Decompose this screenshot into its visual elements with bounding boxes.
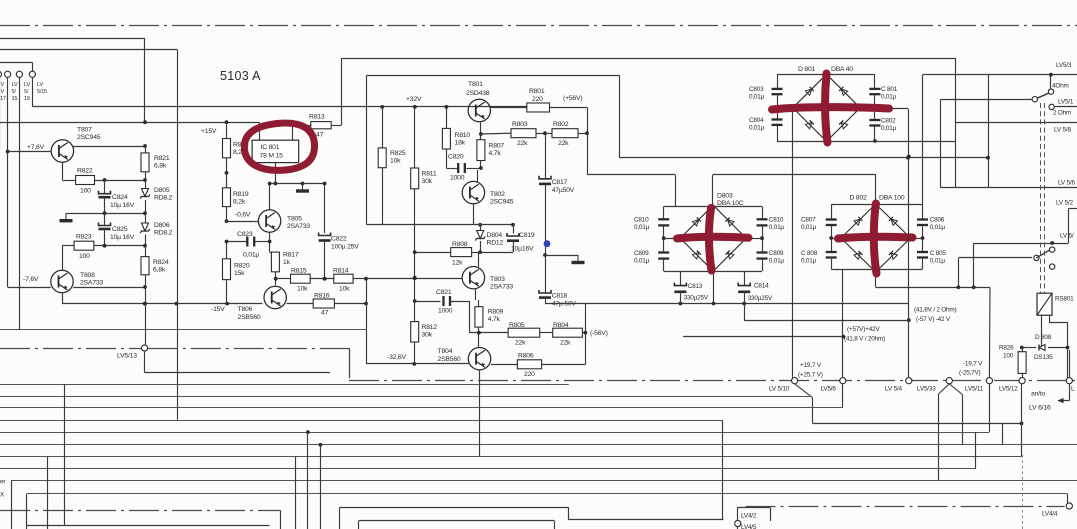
svg-text:V: V — [1, 89, 5, 95]
svg-text:2SA733: 2SA733 — [80, 280, 103, 287]
svg-text:17: 17 — [0, 96, 6, 102]
svg-text:(-57 V) -42 V: (-57 V) -42 V — [916, 316, 951, 323]
svg-text:22k: 22k — [515, 340, 526, 347]
svg-text:T808: T808 — [80, 272, 95, 279]
svg-text:R815: R815 — [291, 268, 307, 275]
svg-text:10k: 10k — [390, 158, 401, 165]
svg-text:LV5/33: LV5/33 — [917, 386, 936, 393]
svg-text:R810: R810 — [455, 132, 471, 139]
svg-text:30k: 30k — [422, 332, 433, 339]
svg-text:C809: C809 — [634, 250, 649, 257]
svg-text:5/: 5/ — [12, 89, 17, 95]
svg-text:8,2k: 8,2k — [233, 199, 246, 206]
svg-text:100µ 25V: 100µ 25V — [331, 244, 359, 251]
svg-text:8,2: 8,2 — [233, 149, 242, 156]
svg-text:6,8k: 6,8k — [154, 163, 167, 170]
svg-text:LV4/4: LV4/4 — [1042, 511, 1058, 518]
svg-text:R805: R805 — [509, 322, 525, 329]
svg-text:18k: 18k — [455, 140, 466, 147]
svg-text:V: V — [1, 82, 5, 88]
svg-text:100: 100 — [79, 253, 90, 260]
svg-text:R821: R821 — [154, 155, 170, 162]
svg-text:LV 5/2: LV 5/2 — [1056, 200, 1073, 207]
svg-text:LV: LV — [37, 82, 43, 88]
svg-text:R822: R822 — [77, 168, 93, 175]
svg-text:4Ohm: 4Ohm — [1052, 83, 1069, 90]
svg-text:5/15: 5/15 — [37, 89, 47, 95]
svg-text:C803: C803 — [749, 86, 764, 93]
svg-text:15: 15 — [12, 96, 18, 102]
svg-text:12k: 12k — [452, 260, 463, 267]
svg-text:RD8,2: RD8,2 — [154, 195, 173, 202]
svg-text:100: 100 — [80, 188, 91, 195]
svg-text:30k: 30k — [422, 178, 433, 185]
svg-text:0,01µ: 0,01µ — [801, 224, 817, 231]
svg-text:(41,8 V / 20hm): (41,8 V / 20hm) — [844, 336, 885, 343]
svg-text:1000: 1000 — [450, 175, 465, 182]
svg-text:R808: R808 — [452, 241, 468, 248]
svg-text:R809: R809 — [488, 309, 504, 316]
svg-text:D 802: D 802 — [850, 195, 868, 202]
svg-text:LV5/1: LV5/1 — [1058, 99, 1074, 106]
svg-text:LV 5/8: LV 5/8 — [1054, 127, 1071, 134]
svg-text:C 808: C 808 — [801, 250, 818, 257]
svg-text:(-25,7V): (-25,7V) — [959, 370, 981, 377]
svg-text:-0,6V: -0,6V — [235, 212, 251, 219]
svg-text:R814: R814 — [333, 268, 349, 275]
svg-text:2SB560: 2SB560 — [438, 356, 461, 363]
svg-text:78 M 15: 78 M 15 — [260, 153, 284, 160]
svg-text:T803: T803 — [490, 276, 505, 283]
svg-text:D 808: D 808 — [1035, 334, 1052, 341]
svg-text:LV5/13: LV5/13 — [117, 353, 137, 360]
svg-text:0,01µ: 0,01µ — [634, 258, 650, 265]
svg-text:R820: R820 — [234, 263, 250, 270]
svg-text:47: 47 — [321, 310, 329, 317]
svg-text:T804: T804 — [438, 348, 453, 355]
svg-text:R803: R803 — [512, 121, 528, 128]
svg-text:22k: 22k — [560, 340, 571, 347]
svg-text:330µ25V: 330µ25V — [748, 295, 773, 302]
svg-text:0,01µ: 0,01µ — [881, 94, 897, 101]
svg-text:R806: R806 — [518, 353, 534, 360]
svg-text:C824: C824 — [112, 194, 128, 201]
svg-text:220: 220 — [532, 96, 543, 103]
svg-text:LV 5/4: LV 5/4 — [885, 386, 902, 393]
svg-text:15k: 15k — [234, 270, 245, 277]
svg-text:100: 100 — [1003, 353, 1014, 360]
svg-text:+32V: +32V — [406, 96, 422, 103]
svg-text:LV5/3: LV5/3 — [1056, 62, 1072, 69]
svg-text:0,01µ: 0,01µ — [881, 125, 897, 132]
svg-text:R824: R824 — [153, 259, 169, 266]
svg-text:R825: R825 — [390, 150, 406, 157]
svg-text:R807: R807 — [489, 143, 505, 150]
svg-text:4,7k: 4,7k — [489, 150, 502, 157]
svg-text:22k: 22k — [517, 140, 528, 147]
svg-text:C821: C821 — [436, 289, 452, 296]
svg-text:C825: C825 — [112, 226, 128, 233]
svg-text:(41,8V / 2 Ohm): (41,8V / 2 Ohm) — [914, 307, 957, 314]
svg-text:RS801: RS801 — [1055, 296, 1074, 303]
svg-text:10µ16V: 10µ16V — [511, 246, 534, 253]
svg-text:0,01µ: 0,01µ — [769, 258, 785, 265]
svg-text:6,8k: 6,8k — [153, 267, 166, 274]
svg-text:1000: 1000 — [438, 308, 453, 315]
svg-text:2SA733: 2SA733 — [490, 284, 513, 291]
svg-text:22k: 22k — [558, 140, 569, 147]
svg-text:0,01µ: 0,01µ — [801, 258, 817, 265]
svg-text:C823: C823 — [237, 231, 253, 238]
svg-text:R802: R802 — [553, 121, 569, 128]
svg-text:4,7k: 4,7k — [488, 316, 501, 323]
svg-text:DBA 100: DBA 100 — [879, 195, 905, 202]
svg-text:LV: LV — [24, 82, 30, 88]
svg-text:LV 5/: LV 5/ — [1060, 233, 1074, 240]
svg-text:RD8,2: RD8,2 — [154, 230, 173, 237]
svg-text:R812: R812 — [422, 324, 438, 331]
svg-text:(+25,7 V): (+25,7 V) — [798, 372, 823, 379]
svg-text:(+56V): (+56V) — [563, 95, 582, 102]
svg-text:10k: 10k — [297, 286, 308, 293]
svg-text:5103 A: 5103 A — [220, 69, 261, 83]
svg-text:2SB560: 2SB560 — [238, 314, 261, 321]
svg-text:R819: R819 — [233, 191, 249, 198]
svg-text:T806: T806 — [238, 306, 253, 313]
svg-text:0,01µ: 0,01µ — [243, 252, 259, 259]
svg-text:+7,6V: +7,6V — [27, 144, 45, 151]
svg-text:0,01µ: 0,01µ — [769, 224, 785, 231]
svg-text:C813: C813 — [688, 283, 703, 290]
svg-text:0,01µ: 0,01µ — [930, 258, 946, 265]
svg-text:LV 6/16: LV 6/16 — [1029, 405, 1051, 412]
svg-text:10µ 16V: 10µ 16V — [110, 202, 135, 209]
svg-text:LV: LV — [12, 82, 18, 88]
svg-text:C814: C814 — [754, 283, 769, 290]
svg-text:C822: C822 — [331, 236, 347, 243]
svg-text:R801: R801 — [529, 88, 545, 95]
svg-text:(-56V): (-56V) — [590, 330, 608, 337]
svg-text:2 Ohm: 2 Ohm — [1053, 110, 1071, 117]
svg-text:R816: R816 — [314, 293, 330, 300]
svg-text:an/to: an/to — [1031, 391, 1046, 398]
svg-text:2SC945: 2SC945 — [77, 134, 101, 141]
svg-text:R817: R817 — [283, 252, 299, 259]
svg-text:0,01µ: 0,01µ — [930, 224, 946, 231]
svg-text:LV5/11: LV5/11 — [965, 386, 984, 393]
svg-text:DBA 40: DBA 40 — [831, 66, 853, 73]
svg-text:LV4/2: LV4/2 — [741, 513, 757, 520]
svg-text:330µ25V: 330µ25V — [684, 295, 709, 302]
svg-text:-15V: -15V — [211, 306, 225, 313]
svg-text:1k: 1k — [283, 259, 291, 266]
svg-text:R823: R823 — [76, 234, 92, 241]
svg-text:2SA733: 2SA733 — [287, 223, 310, 230]
svg-text:R804: R804 — [553, 322, 569, 329]
svg-text:R826: R826 — [999, 345, 1014, 352]
svg-text:220: 220 — [524, 371, 535, 378]
svg-text:D806: D806 — [154, 222, 170, 229]
svg-text:0,01µ: 0,01µ — [749, 94, 765, 101]
svg-text:19: 19 — [24, 96, 30, 102]
svg-text:DS135: DS135 — [1034, 354, 1053, 361]
svg-text:LV5/6: LV5/6 — [821, 386, 837, 393]
svg-text:C 801: C 801 — [881, 86, 898, 93]
svg-text:(+57V)+42V: (+57V)+42V — [847, 326, 880, 333]
svg-text:D805: D805 — [154, 187, 170, 194]
svg-text:R811: R811 — [422, 171, 437, 178]
svg-text:47: 47 — [316, 132, 324, 139]
svg-text:LV 5/6: LV 5/6 — [1058, 180, 1075, 187]
svg-text:-19,7 V: -19,7 V — [963, 361, 983, 368]
svg-text:T807: T807 — [77, 127, 92, 134]
svg-text:2SD438: 2SD438 — [466, 90, 490, 97]
svg-text:2SC945: 2SC945 — [490, 199, 514, 206]
svg-text:+15V: +15V — [201, 128, 217, 135]
svg-text:C802: C802 — [881, 118, 896, 125]
svg-text:C820: C820 — [448, 154, 464, 161]
svg-text:C817: C817 — [552, 179, 568, 186]
svg-text:RD12: RD12 — [487, 240, 504, 247]
svg-text:LV5/12: LV5/12 — [999, 386, 1018, 393]
svg-text:C806: C806 — [930, 217, 945, 224]
svg-text:0,01µ: 0,01µ — [634, 224, 650, 231]
svg-text:-7,6V: -7,6V — [23, 276, 39, 283]
svg-text:C810: C810 — [769, 217, 784, 224]
svg-text:0,01µ: 0,01µ — [749, 125, 765, 132]
svg-text:D804: D804 — [487, 232, 503, 239]
svg-text:10k: 10k — [339, 286, 350, 293]
svg-text:C810: C810 — [634, 217, 649, 224]
svg-text:T805: T805 — [287, 216, 302, 223]
svg-text:C807: C807 — [801, 217, 816, 224]
svg-text:C819: C819 — [519, 232, 535, 239]
svg-text:-32,6V: -32,6V — [387, 354, 406, 361]
svg-text:T802: T802 — [490, 191, 505, 198]
svg-text:47µ50V: 47µ50V — [552, 187, 575, 194]
svg-text:10µ 16V: 10µ 16V — [110, 234, 135, 241]
svg-text:D803: D803 — [717, 193, 733, 200]
svg-text:C818: C818 — [552, 293, 568, 300]
svg-text:C 805: C 805 — [930, 250, 947, 257]
svg-text:C809: C809 — [769, 250, 784, 257]
svg-text:LV4/5: LV4/5 — [741, 524, 757, 529]
svg-text:+19,7 V: +19,7 V — [800, 362, 822, 369]
svg-text:LV 5/10: LV 5/10 — [769, 386, 790, 393]
svg-text:IC 801: IC 801 — [261, 144, 280, 151]
svg-text:C804: C804 — [749, 117, 764, 124]
svg-text:5/: 5/ — [24, 89, 29, 95]
svg-text:T801: T801 — [468, 81, 483, 88]
svg-text:D 801: D 801 — [798, 66, 816, 73]
svg-text:R813: R813 — [309, 114, 325, 121]
